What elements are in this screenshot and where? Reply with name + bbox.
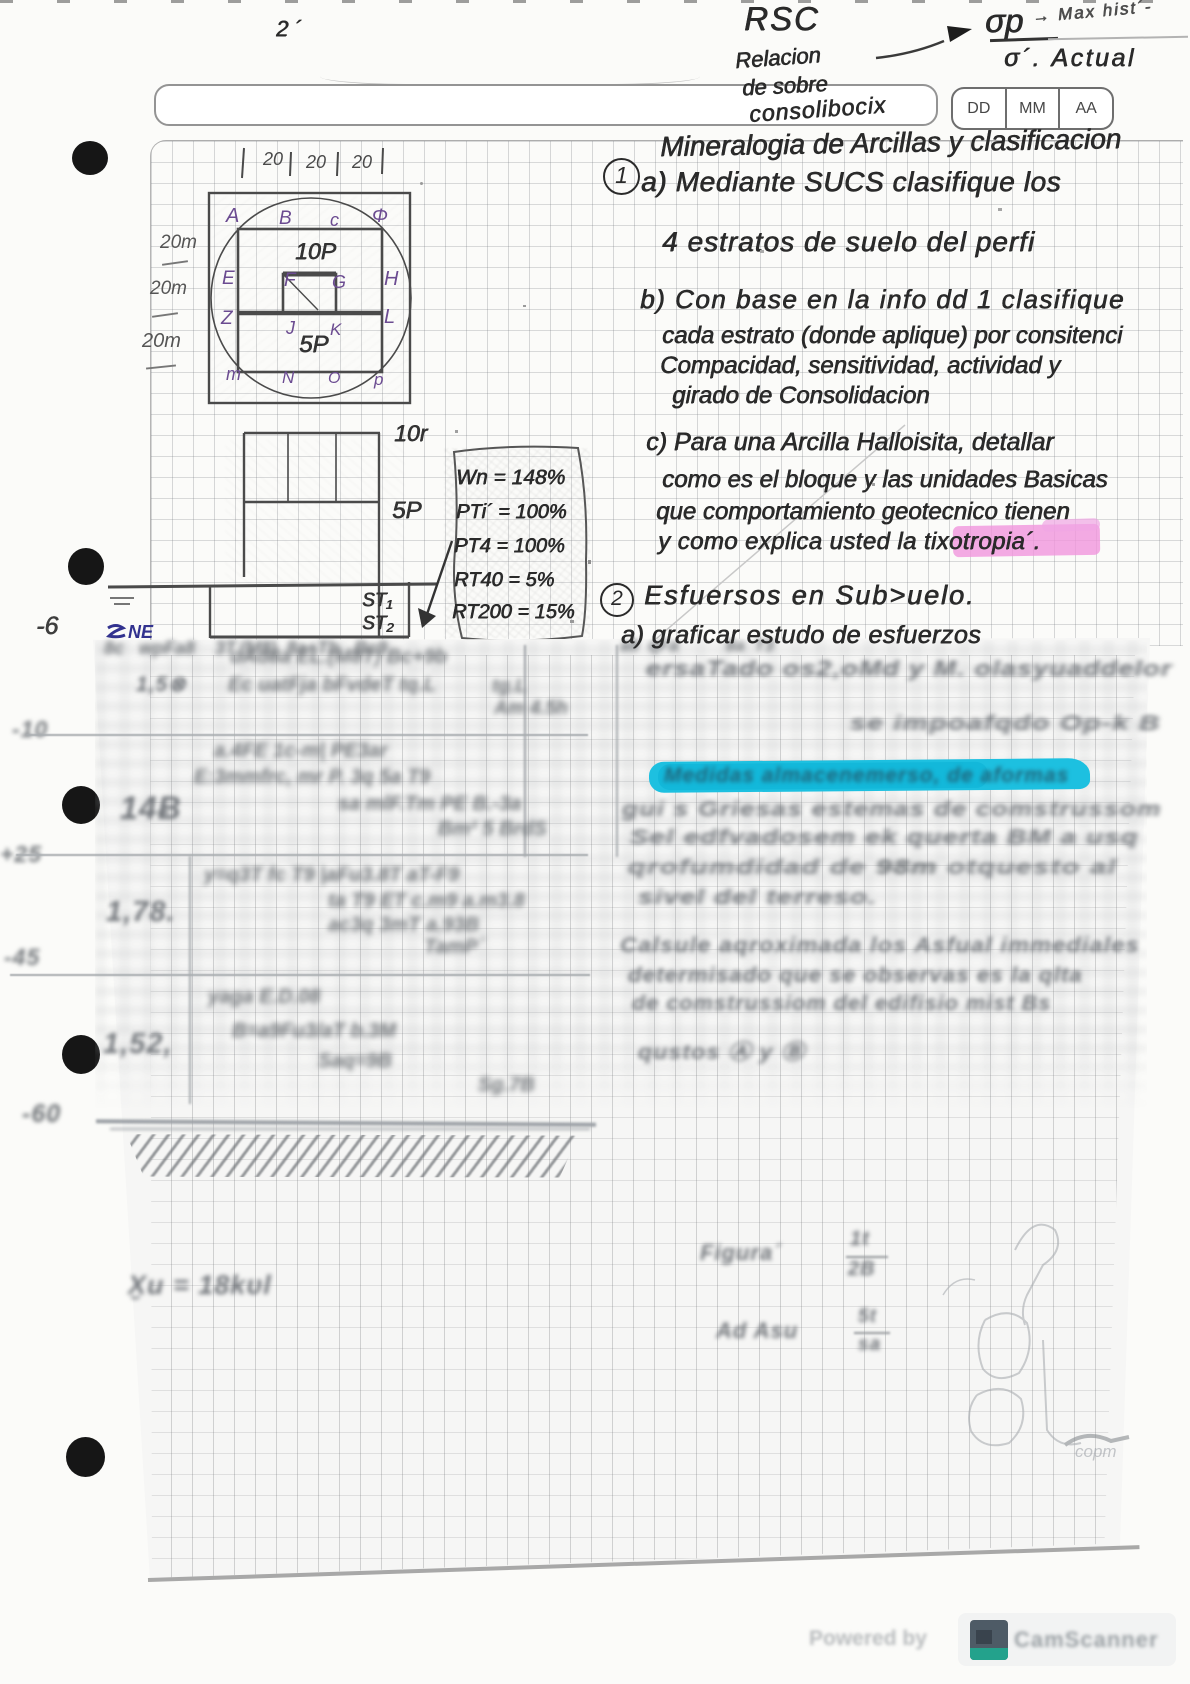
svg-text:copm: copm (1075, 1442, 1117, 1461)
